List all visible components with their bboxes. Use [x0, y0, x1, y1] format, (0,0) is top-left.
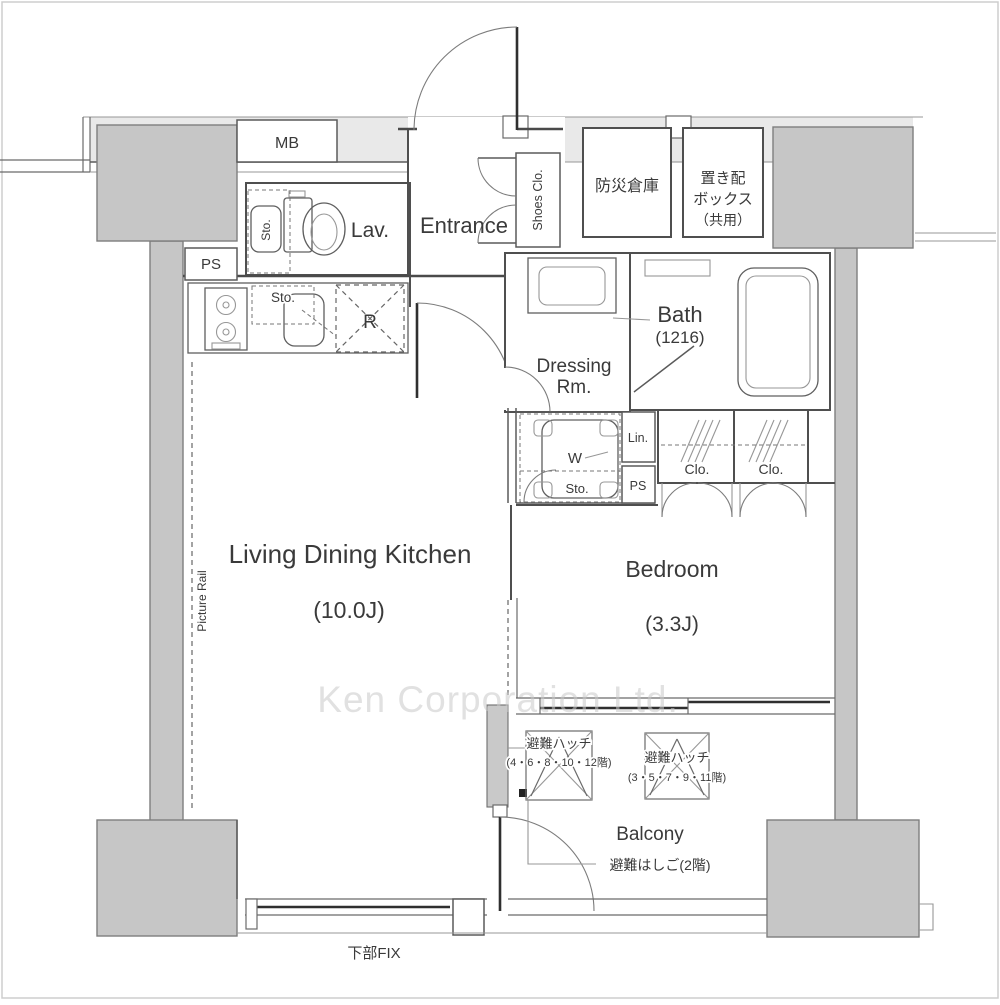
shoes-closet-label: Shoes Clo.: [531, 169, 545, 230]
wall-post-left: [503, 116, 528, 138]
hatch-b-label-1: 避難ハッチ: [644, 750, 709, 765]
bath-room: [613, 253, 830, 410]
ldk-floor: [183, 275, 508, 900]
bedroom-floor: [516, 483, 835, 698]
washer-label: W: [568, 450, 583, 467]
ldk-fix-window-icon: [245, 899, 487, 929]
pillar-top-right: [773, 127, 913, 248]
picture-rail-label: Picture Rail: [195, 570, 209, 631]
dressing-label-2: Rm.: [557, 377, 592, 398]
lavatory-label: Lav.: [351, 219, 389, 242]
balcony-railing-icon: [508, 899, 767, 915]
pillar-bottom-left: [97, 820, 237, 936]
washer-storage-label: Sto.: [565, 481, 588, 496]
fix-window-label: 下部FIX: [347, 945, 400, 962]
delivery-box-label-3: （共用）: [695, 212, 751, 228]
window-post: [453, 899, 484, 935]
delivery-box-label-2: ボックス: [693, 191, 753, 208]
ldk-size-label: (10.0J): [313, 597, 385, 623]
closet-right-label: Clo.: [759, 461, 784, 477]
ps-upper-label: PS: [201, 256, 221, 273]
refrigerator-label: R: [363, 312, 377, 333]
balcony-wall-segment: [487, 705, 508, 807]
bedroom-name-label: Bedroom: [625, 556, 718, 582]
balcony-area: [487, 705, 709, 911]
entrance-label: Entrance: [420, 213, 508, 238]
delivery-box-label-1: 置き配: [700, 170, 745, 187]
bath-label: Bath: [657, 302, 702, 327]
pillar-top-left: [97, 125, 237, 241]
hatch-a-label-2: (4・6・8・10・12階): [506, 755, 611, 769]
pillar-bottom-right: [767, 820, 919, 937]
kitchen-storage-label: Sto.: [271, 290, 295, 305]
left-wall-column: [150, 241, 183, 821]
entry-door-icon: [414, 27, 517, 130]
hatch-b-label-2: (3・5・7・9・11階): [628, 770, 726, 784]
bedroom-size-label: (3.3J): [645, 613, 699, 636]
disaster-storage-label: 防災倉庫: [595, 177, 659, 195]
balcony-label: Balcony: [616, 824, 684, 845]
escape-hatch-b-icon: [645, 733, 709, 799]
mb-label: MB: [275, 135, 299, 152]
escape-ladder-label: 避難はしご(2階): [609, 857, 710, 873]
dressing-label-1: Dressing: [537, 356, 612, 377]
watermark: Ken Corporation Ltd.: [317, 679, 678, 720]
hatch-a-label-1: 避難ハッチ: [526, 736, 591, 751]
right-wall-column: [835, 248, 857, 820]
ldk-name-label: Living Dining Kitchen: [229, 539, 472, 569]
linen-label: Lin.: [628, 431, 648, 445]
closet-left-label: Clo.: [685, 461, 710, 477]
bath-size-label: (1216): [655, 328, 704, 347]
floor-plan-drawing: MB PS Sto. Lav. Entrance Shoes Clo. 防災倉庫…: [0, 0, 1000, 1000]
lavatory-storage-label: Sto.: [259, 219, 273, 240]
ps-lower-label: PS: [630, 479, 647, 493]
floor-plan-page: MB PS Sto. Lav. Entrance Shoes Clo. 防災倉庫…: [0, 0, 1000, 1000]
